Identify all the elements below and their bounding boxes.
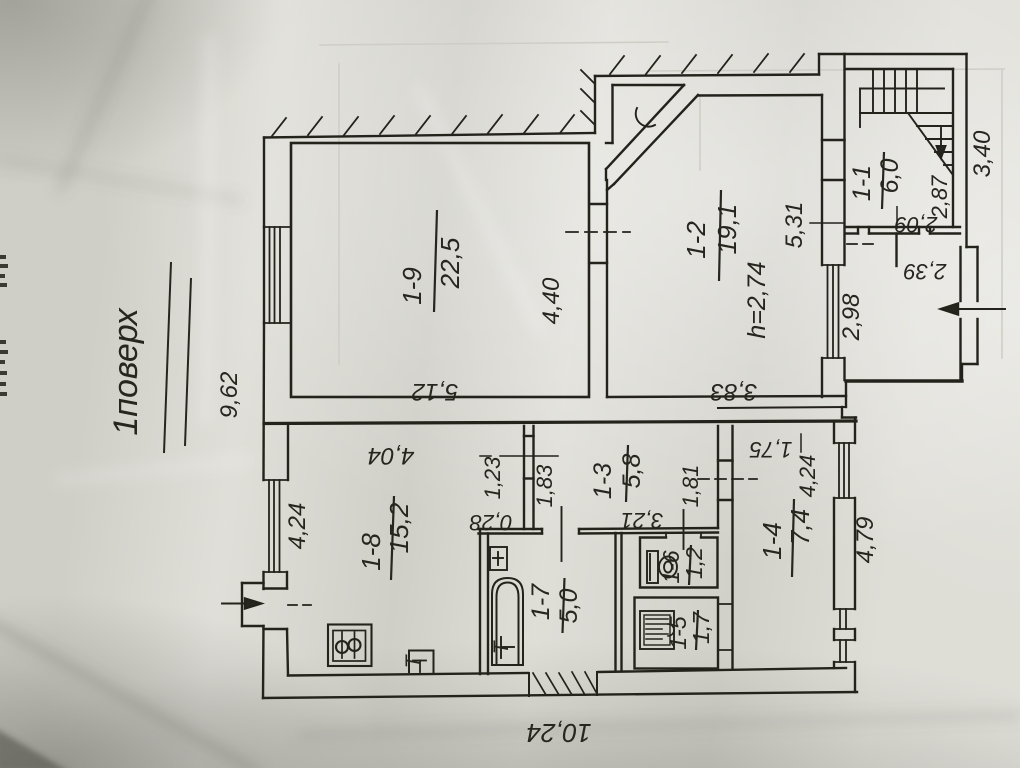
svg-text:4,40: 4,40 xyxy=(538,277,565,324)
svg-text:2,98: 2,98 xyxy=(838,293,865,341)
svg-text:h=2,74: h=2,74 xyxy=(743,261,771,338)
svg-text:4,79: 4,79 xyxy=(852,517,879,564)
svg-text:3,40: 3,40 xyxy=(969,130,996,177)
svg-text:T: T xyxy=(490,639,513,654)
svg-text:1,75: 1,75 xyxy=(749,437,793,462)
svg-text:9,62: 9,62 xyxy=(216,372,243,419)
svg-text:5,8: 5,8 xyxy=(618,454,646,489)
svg-text:1-7: 1-7 xyxy=(527,583,555,620)
svg-text:1,83: 1,83 xyxy=(532,464,557,508)
svg-text:1,81: 1,81 xyxy=(678,465,703,508)
svg-text:1,7: 1,7 xyxy=(688,611,714,644)
svg-text:3,21: 3,21 xyxy=(621,508,664,533)
svg-text:4,24: 4,24 xyxy=(284,503,311,550)
svg-text:5,12: 5,12 xyxy=(412,378,459,405)
svg-text:1-4: 1-4 xyxy=(757,522,787,560)
svg-text:3,83: 3,83 xyxy=(710,378,757,405)
svg-text:19,1: 19,1 xyxy=(712,204,742,255)
svg-text:2,39: 2,39 xyxy=(904,259,948,284)
svg-text:1-3: 1-3 xyxy=(589,463,617,499)
svg-text:6,0: 6,0 xyxy=(876,159,904,194)
svg-text:1,2: 1,2 xyxy=(681,547,707,579)
svg-text:15,2: 15,2 xyxy=(384,502,414,553)
svg-text:1-1: 1-1 xyxy=(848,165,876,201)
svg-text:5,31: 5,31 xyxy=(781,202,808,249)
svg-text:5,0: 5,0 xyxy=(555,589,583,624)
svg-text:2,09: 2,09 xyxy=(895,212,939,237)
svg-text:1поверх: 1поверх xyxy=(107,307,145,435)
svg-text:7,4: 7,4 xyxy=(785,509,815,545)
svg-text:4,04: 4,04 xyxy=(368,442,415,469)
svg-text:22,5: 22,5 xyxy=(435,237,465,289)
svg-text:1-2: 1-2 xyxy=(681,221,711,259)
svg-text:0,28: 0,28 xyxy=(469,510,513,535)
svg-text:4,24: 4,24 xyxy=(795,455,820,498)
svg-text:1-8: 1-8 xyxy=(356,533,386,571)
svg-text:1-9: 1-9 xyxy=(397,267,427,305)
svg-text:1,23: 1,23 xyxy=(480,456,505,500)
svg-text:10,24: 10,24 xyxy=(526,718,591,748)
svg-text:T: T xyxy=(402,653,425,668)
